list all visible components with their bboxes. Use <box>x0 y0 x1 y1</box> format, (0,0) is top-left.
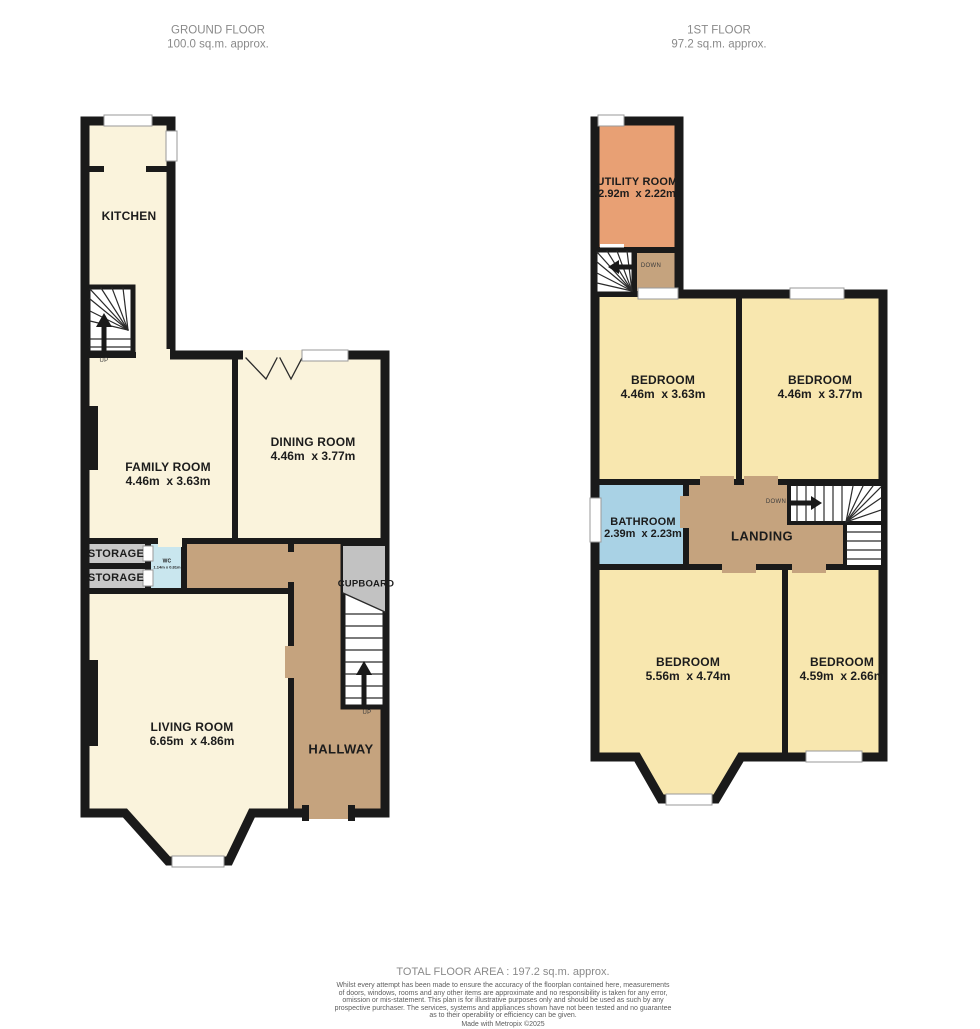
utility-room-label: UTILITY ROOM 2.92m x 2.22m <box>596 176 677 200</box>
front-door-stub-right <box>348 805 355 821</box>
first-floor-area: 97.2 sq.m. approx. <box>671 38 766 52</box>
first-floor-plan <box>590 115 883 805</box>
front-door-gap <box>307 807 349 819</box>
up-label-hall-stairs: UP <box>363 710 372 716</box>
ground-floor-area: 100.0 sq.m. approx. <box>167 38 269 52</box>
storage2-label: STORAGE <box>88 572 144 584</box>
door-gap-hall-living <box>285 646 297 678</box>
stairs-top-down <box>595 250 634 294</box>
door-gap-bed-br <box>792 561 826 573</box>
room-bed-bl <box>595 567 785 799</box>
footer: TOTAL FLOOR AREA : 197.2 sq.m. approx. W… <box>183 966 823 1028</box>
bedroom-bl-label: BEDROOM 5.56m x 4.74m <box>646 655 731 683</box>
door-gap-bed-bl <box>722 561 756 573</box>
window-bed-tl <box>638 288 678 299</box>
door-gap-storage1 <box>143 546 153 561</box>
hallway-label: HALLWAY <box>308 742 373 757</box>
hall-corridor <box>184 541 291 591</box>
bathroom-label: BATHROOM 2.39m x 2.23m <box>604 516 682 540</box>
door-gap-dining-doors <box>243 350 305 361</box>
room-porch <box>85 121 171 169</box>
floorplan-drawing <box>0 0 980 1029</box>
window-bathroom <box>590 498 601 542</box>
front-door-stub-left <box>302 805 309 821</box>
living-room-label: LIVING ROOM 6.65m x 4.86m <box>150 720 235 748</box>
window-bed-bl-bay <box>666 794 712 805</box>
window-utility-top <box>598 115 624 126</box>
window-bed-tr <box>790 288 844 299</box>
room-family <box>85 355 235 541</box>
family-room-label: FAMILY ROOM 4.46m x 3.63m <box>125 460 211 488</box>
bedroom-tr-label: BEDROOM 4.46m x 3.77m <box>778 373 863 401</box>
stairs-kitchen <box>88 287 133 353</box>
stair-landing-top <box>634 250 679 294</box>
down-label-top-stairs: DOWN <box>641 263 661 269</box>
ground-floor-title: GROUND FLOOR <box>167 25 269 39</box>
door-gap-wc <box>158 535 182 547</box>
window-dining-top <box>302 350 348 361</box>
cupboard-label: CUPBOARD <box>338 579 395 590</box>
chimney-block-family <box>82 406 98 470</box>
door-gap-storage2 <box>143 570 153 586</box>
chimney-block-living <box>82 660 98 746</box>
first-floor-header: 1ST FLOOR 97.2 sq.m. approx. <box>671 25 766 52</box>
made-with-credit: Made with Metropix ©2025 <box>183 1021 823 1028</box>
window-bed-br <box>806 751 862 762</box>
total-floor-area: TOTAL FLOOR AREA : 197.2 sq.m. approx. <box>183 966 823 978</box>
door-gap-corridor-hall <box>285 552 297 582</box>
dining-room-label: DINING ROOM 4.46m x 3.77m <box>271 435 356 463</box>
door-gap-bed-tl <box>700 476 734 488</box>
door-gap-kitchen-family <box>136 349 170 361</box>
door-gap-porch-kitchen <box>104 163 146 175</box>
window-porch-right <box>166 131 177 161</box>
bedroom-tl-label: BEDROOM 4.46m x 3.63m <box>621 373 706 401</box>
kitchen-label: KITCHEN <box>102 209 157 223</box>
first-floor-title: 1ST FLOOR <box>671 25 766 39</box>
stairs-hallway <box>343 546 385 707</box>
floorplan-page: GROUND FLOOR 100.0 sq.m. approx. 1ST FLO… <box>0 0 980 1029</box>
down-label-main-stairs: DOWN <box>766 499 786 505</box>
up-label-kitchen-stairs: UP <box>100 358 109 364</box>
wc-label: WC 1.14m x 0.81m <box>153 559 180 570</box>
bedroom-br-label: BEDROOM 4.59m x 2.66m <box>800 655 885 683</box>
door-gap-bed-tr <box>744 476 778 488</box>
disclaimer: Whilst every attempt has been made to en… <box>183 982 823 1020</box>
storage1-label: STORAGE <box>88 548 144 560</box>
window-porch-top <box>104 115 152 126</box>
landing-label: LANDING <box>731 529 793 544</box>
window-living-bay <box>172 856 224 867</box>
ground-floor-header: GROUND FLOOR 100.0 sq.m. approx. <box>167 25 269 52</box>
